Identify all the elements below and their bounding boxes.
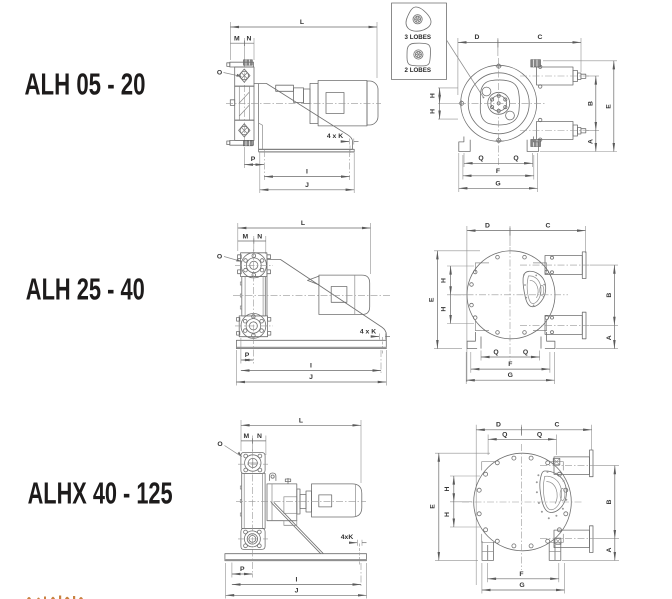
svg-text:N: N bbox=[247, 36, 252, 43]
svg-text:ALH 25 - 40: ALH 25 - 40 bbox=[26, 273, 145, 307]
svg-text:Q: Q bbox=[478, 155, 483, 162]
svg-text:H: H bbox=[444, 486, 451, 491]
svg-text:P: P bbox=[251, 156, 256, 163]
svg-text:E: E bbox=[606, 104, 613, 109]
svg-text:I: I bbox=[306, 169, 308, 176]
svg-text:A: A bbox=[606, 335, 613, 340]
svg-text:P: P bbox=[240, 566, 245, 573]
svg-text:F: F bbox=[508, 361, 512, 368]
svg-text:J: J bbox=[305, 182, 309, 189]
svg-text:L: L bbox=[299, 417, 303, 424]
svg-text:Q: Q bbox=[513, 155, 518, 162]
svg-text:2 LOBES: 2 LOBES bbox=[405, 67, 432, 74]
svg-text:H: H bbox=[430, 109, 437, 114]
svg-text:D: D bbox=[485, 222, 490, 229]
svg-text:Q: Q bbox=[523, 349, 528, 356]
svg-text:O: O bbox=[217, 441, 222, 448]
svg-text:F: F bbox=[496, 168, 500, 175]
svg-text:G: G bbox=[519, 582, 524, 589]
svg-text:G: G bbox=[508, 372, 513, 379]
svg-text:N: N bbox=[257, 233, 262, 240]
svg-text:M: M bbox=[242, 233, 248, 240]
svg-text:D: D bbox=[496, 422, 501, 429]
svg-text:Q: Q bbox=[502, 432, 507, 439]
svg-text:4 x K: 4 x K bbox=[327, 133, 343, 140]
svg-text:G: G bbox=[495, 180, 500, 187]
svg-text:L: L bbox=[300, 19, 304, 26]
svg-text:C: C bbox=[546, 222, 551, 229]
svg-text:4 x K: 4 x K bbox=[360, 329, 376, 336]
svg-text:C: C bbox=[555, 422, 560, 429]
svg-text:D: D bbox=[475, 34, 480, 41]
svg-text:4xK: 4xK bbox=[341, 534, 354, 541]
svg-text:B: B bbox=[606, 499, 613, 504]
svg-text:ALHX 40 - 125: ALHX 40 - 125 bbox=[28, 476, 173, 510]
svg-text:L: L bbox=[301, 220, 305, 227]
svg-text:H: H bbox=[441, 278, 448, 283]
svg-text:C: C bbox=[538, 34, 543, 41]
svg-text:J: J bbox=[295, 587, 299, 594]
svg-text:H: H bbox=[430, 93, 437, 98]
svg-text:B: B bbox=[588, 101, 595, 106]
svg-text:E: E bbox=[430, 504, 437, 509]
svg-text:ALH 05 - 20: ALH 05 - 20 bbox=[25, 68, 146, 102]
svg-text:H: H bbox=[441, 307, 448, 312]
svg-text:M: M bbox=[234, 36, 240, 43]
svg-text:A: A bbox=[588, 139, 595, 144]
svg-text:N: N bbox=[257, 433, 262, 440]
svg-text:I: I bbox=[296, 577, 298, 584]
svg-text:O: O bbox=[217, 70, 222, 77]
svg-text:B: B bbox=[606, 293, 613, 298]
svg-text:F: F bbox=[519, 571, 523, 578]
svg-text:A: A bbox=[606, 547, 613, 552]
svg-text:E: E bbox=[428, 297, 435, 302]
svg-text:J: J bbox=[309, 374, 313, 381]
svg-text:Q: Q bbox=[537, 432, 542, 439]
svg-text:M: M bbox=[243, 433, 249, 440]
svg-text:P: P bbox=[245, 352, 250, 359]
svg-text:H: H bbox=[444, 512, 451, 517]
svg-text:3 LOBES: 3 LOBES bbox=[405, 34, 432, 41]
svg-text:I: I bbox=[310, 363, 312, 370]
svg-text:O: O bbox=[217, 254, 222, 261]
svg-text:Q: Q bbox=[493, 349, 498, 356]
